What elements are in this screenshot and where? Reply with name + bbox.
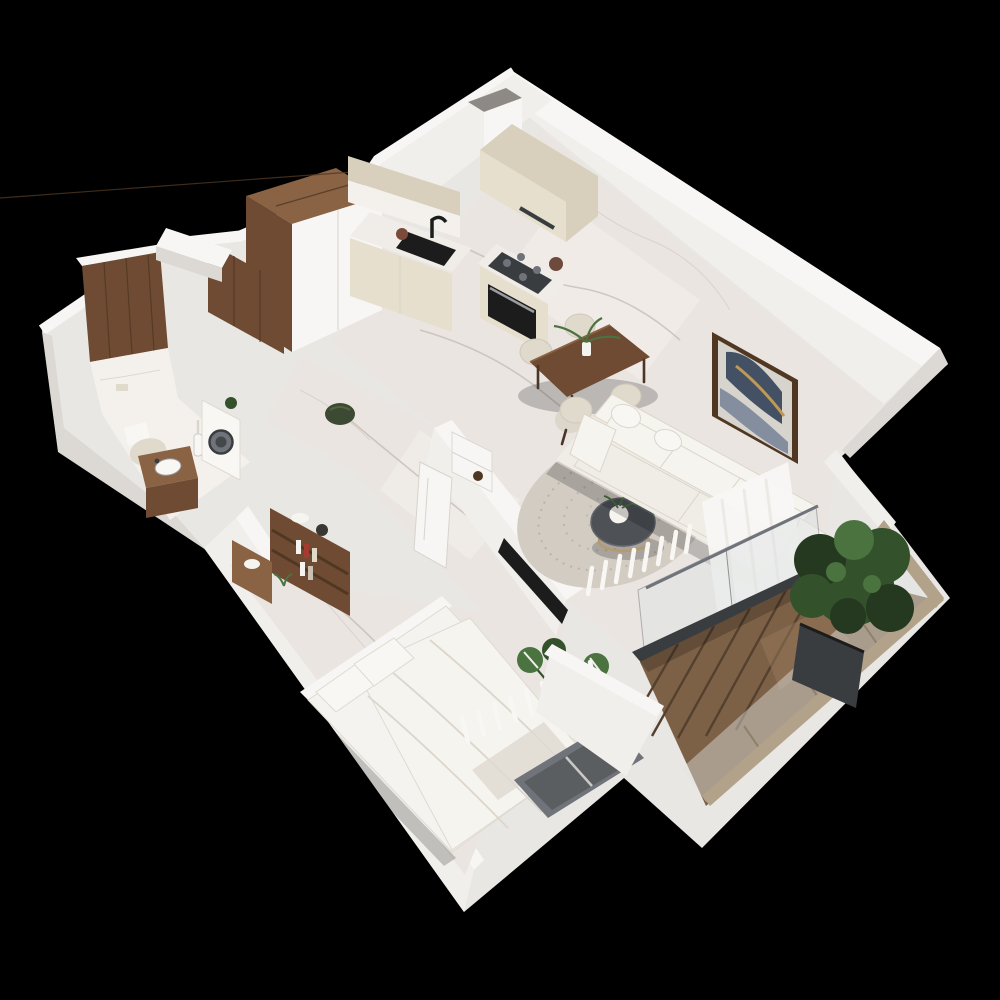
soap-niche (116, 384, 128, 391)
burner (517, 253, 525, 261)
burner (533, 266, 541, 274)
brush-holder (194, 434, 202, 456)
floorplan-svg (0, 0, 1000, 1000)
vase (582, 342, 591, 356)
shrub-foliage (830, 598, 866, 634)
burner (503, 259, 511, 267)
shrub-foliage (790, 574, 834, 618)
decor-bowl (473, 471, 483, 481)
faucet-dot (155, 459, 160, 464)
book (308, 566, 313, 580)
shelf-decor-dark (316, 524, 328, 536)
book (300, 562, 305, 576)
vanity (138, 446, 198, 518)
book (312, 548, 317, 562)
washer-plant (225, 397, 237, 409)
shrub-foliage (834, 520, 874, 560)
shrub-highlight (863, 575, 881, 593)
walnut-wall (82, 252, 168, 362)
shelf-decor-white (291, 513, 309, 523)
book (304, 544, 309, 558)
glass-vase (396, 228, 408, 240)
washer-door-inner (216, 437, 227, 448)
desk-decor (244, 559, 260, 569)
open-door (414, 462, 452, 568)
floorplan-render (0, 0, 1000, 1000)
walnut-accent-wall (82, 252, 168, 362)
toaster-decor (549, 257, 563, 271)
shrub-highlight (826, 562, 846, 582)
burner (519, 273, 527, 281)
book (296, 540, 301, 554)
